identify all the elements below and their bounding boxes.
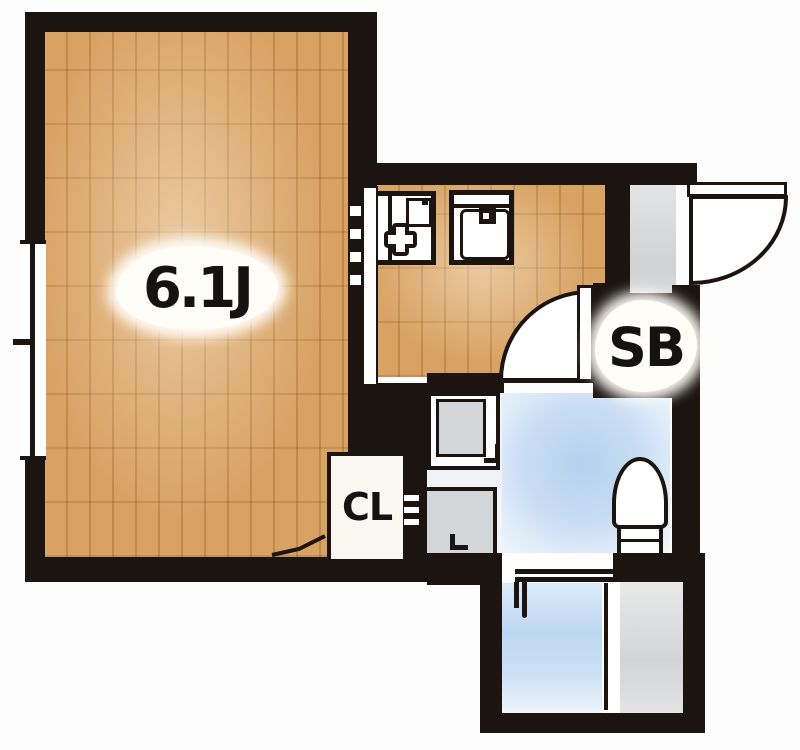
window-cap — [20, 240, 46, 244]
entrance-door-swing — [691, 197, 786, 283]
washbasin-icon — [427, 392, 500, 470]
wall — [25, 12, 377, 32]
sink-icon — [449, 190, 514, 265]
floor-plan: 6.1J SB CL — [0, 0, 800, 750]
closet-door-track-dashes — [404, 495, 419, 501]
sliding-door-track — [350, 229, 361, 239]
closet-door-track-dashes — [404, 519, 419, 525]
wall — [25, 12, 45, 242]
wall — [480, 553, 502, 733]
washroom-door-leaf — [577, 285, 594, 382]
window-mullion-tick — [13, 339, 30, 345]
stove-icon — [370, 191, 436, 265]
shoe-box-label: SB — [595, 308, 697, 388]
main-room-label: 6.1J — [116, 252, 278, 326]
tub-faucet-icon — [522, 582, 527, 618]
tub-faucet-icon — [514, 582, 519, 608]
window-glass-line — [30, 242, 35, 460]
window-cap — [20, 456, 46, 460]
tub-divider-line — [604, 582, 608, 710]
entrance-door-leaf — [687, 182, 787, 197]
wall — [480, 713, 705, 733]
stove-counter-square — [406, 198, 432, 227]
sliding-door-track — [350, 275, 361, 285]
wall — [348, 190, 363, 385]
closet-label: CL — [329, 487, 405, 527]
wall — [605, 163, 630, 305]
wall — [613, 553, 683, 585]
entry-floor — [629, 185, 676, 295]
toilet-tank-line — [621, 539, 659, 542]
sliding-door-track — [350, 252, 361, 262]
bath-door — [515, 569, 613, 574]
wall — [360, 163, 697, 185]
closet-door-track-dashes — [404, 507, 419, 513]
wall — [427, 373, 504, 393]
bath-door — [515, 577, 613, 582]
sliding-door-leaf — [362, 186, 378, 386]
shower-area — [620, 582, 683, 713]
sliding-door-track — [350, 206, 361, 216]
wall — [683, 553, 705, 733]
washing-machine-pan-icon — [423, 487, 497, 557]
